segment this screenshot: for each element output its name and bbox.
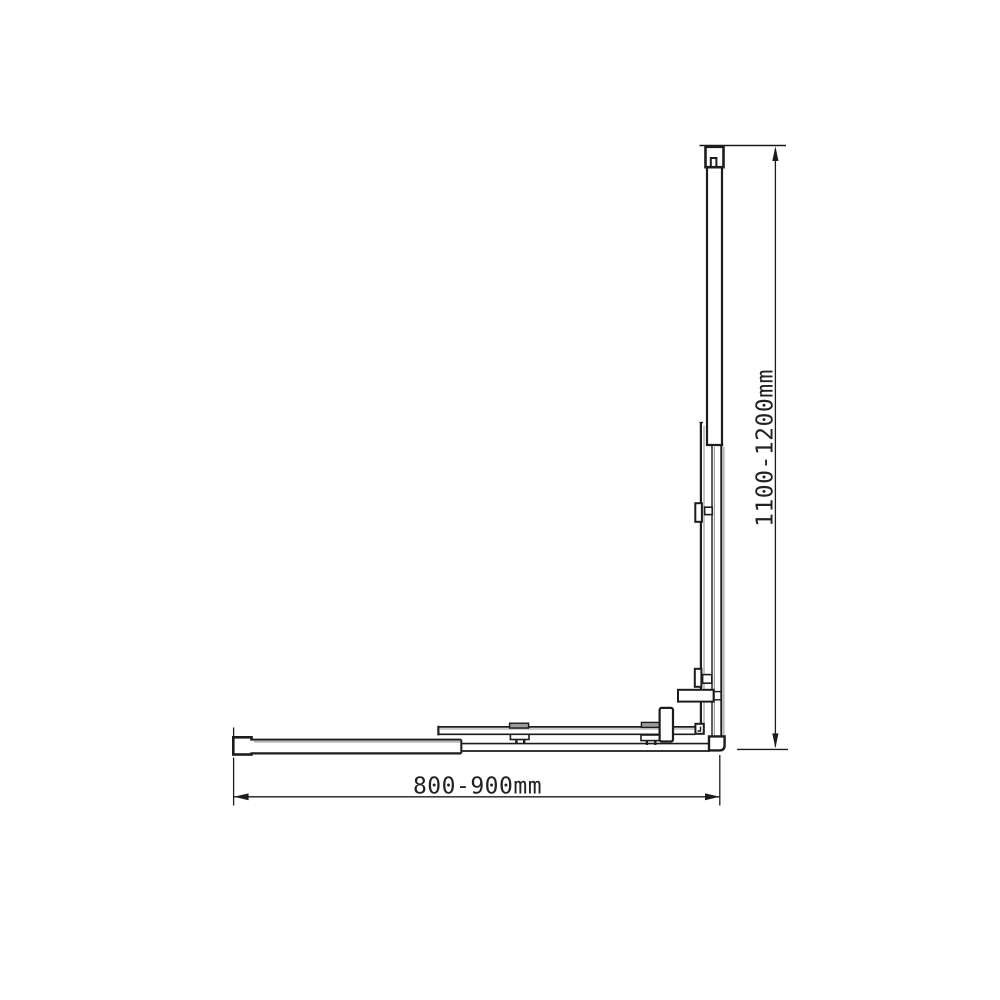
wall-profile-rail bbox=[706, 167, 723, 446]
height-dimension: 1100-1200mm bbox=[737, 146, 788, 749]
dimension-arrow-up-icon bbox=[772, 146, 778, 161]
technical-drawing: 1100-1200mm 800-900mm bbox=[0, 0, 1000, 1000]
dimension-arrow-down-icon bbox=[772, 733, 778, 748]
guide-bracket-left bbox=[510, 734, 529, 743]
glass-clamp-bottom bbox=[695, 669, 712, 687]
height-dimension-label: 1100-1200mm bbox=[753, 369, 779, 527]
corner-guide bbox=[695, 724, 703, 734]
dimension-arrow-left-icon bbox=[234, 793, 249, 800]
drawing-canvas: 1100-1200mm 800-900mm bbox=[0, 0, 1000, 1000]
roller-block-left bbox=[510, 723, 529, 728]
bottom-corner-piece bbox=[709, 736, 725, 750]
wall-profile-top-cap bbox=[706, 147, 724, 167]
width-dimension-label: 800-900mm bbox=[413, 774, 542, 800]
corner-post-bracket bbox=[660, 708, 673, 742]
front-fixed-panel bbox=[236, 740, 461, 754]
front-panel-inset-lines bbox=[461, 744, 716, 751]
dimension-arrow-right-icon bbox=[705, 793, 720, 800]
roller-block-right bbox=[641, 722, 660, 727]
front-panel-assembly bbox=[233, 708, 724, 755]
support-arm bbox=[678, 690, 721, 702]
